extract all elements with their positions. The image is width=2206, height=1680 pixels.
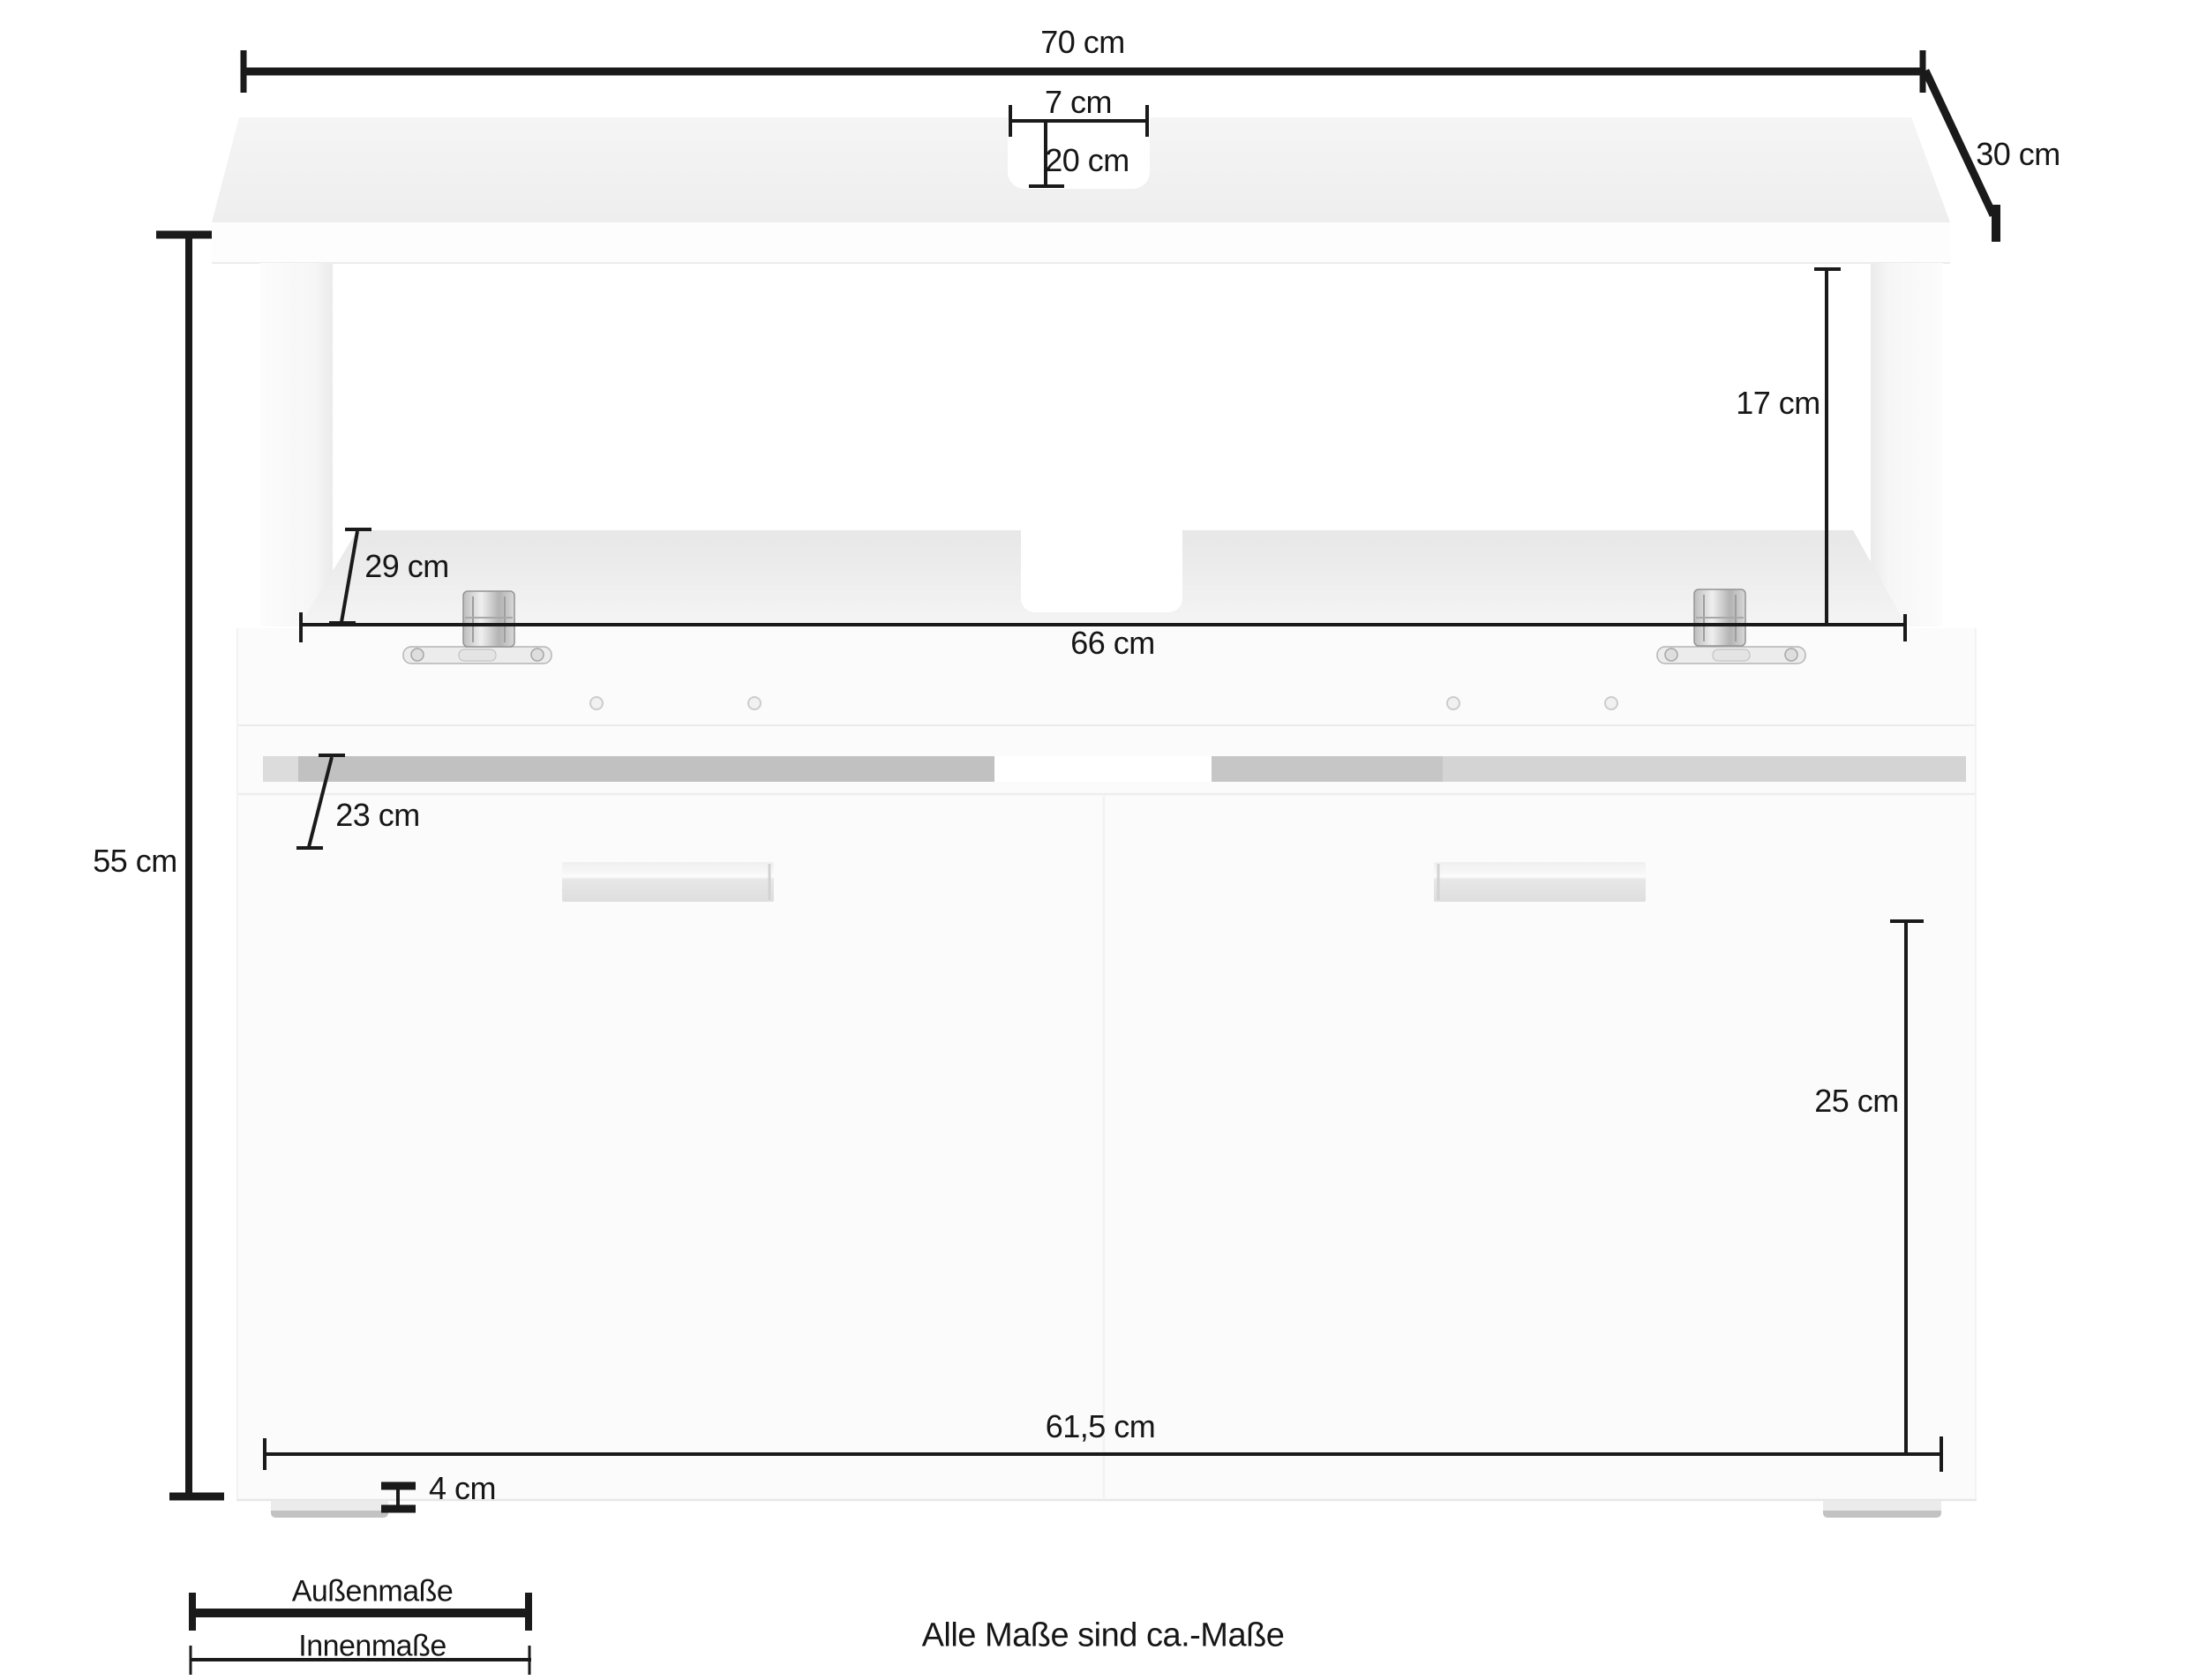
left-foot xyxy=(271,1501,388,1518)
dowel-hole xyxy=(748,697,761,709)
label-cutout-width: 7 cm xyxy=(1045,84,1112,121)
legend-inner-label: Innenmaße xyxy=(298,1630,446,1664)
legend-outer-label: Außenmaße xyxy=(292,1575,454,1609)
top-panel-front xyxy=(212,222,1950,263)
label-shelf-height: 17 cm xyxy=(1736,385,1820,422)
dimension-diagram: 70 cm 7 cm 20 cm 30 cm 17 cm 29 cm 66 cm… xyxy=(0,0,2206,1680)
shelf-right-post xyxy=(1871,263,1943,626)
label-cabinet-height: 25 cm xyxy=(1814,1083,1899,1120)
shelf-left-post xyxy=(260,263,333,626)
label-outer-height: 55 cm xyxy=(93,843,177,880)
label-cutout-depth: 20 cm xyxy=(1045,142,1129,179)
dowel-hole xyxy=(1605,697,1617,709)
left-door-handle xyxy=(562,862,774,902)
label-foot-height: 4 cm xyxy=(429,1470,496,1507)
diagram-note: Alle Maße sind ca.-Maße xyxy=(922,1617,1285,1655)
label-cabinet-width: 61,5 cm xyxy=(1046,1408,1156,1445)
right-foot xyxy=(1823,1501,1941,1518)
label-outer-depth: 30 cm xyxy=(1976,136,2060,173)
label-outer-width: 70 cm xyxy=(1040,24,1125,61)
label-cabinet-depth: 23 cm xyxy=(335,797,420,834)
dowel-hole xyxy=(1447,697,1459,709)
right-door-handle xyxy=(1434,862,1646,902)
vanity-unit xyxy=(212,116,1977,1518)
shelf-floor-notch xyxy=(1021,529,1182,612)
dowel-hole xyxy=(590,697,603,709)
label-shelf-width: 66 cm xyxy=(1070,625,1155,662)
label-shelf-depth: 29 cm xyxy=(364,548,449,585)
shadow-band xyxy=(263,756,1966,782)
